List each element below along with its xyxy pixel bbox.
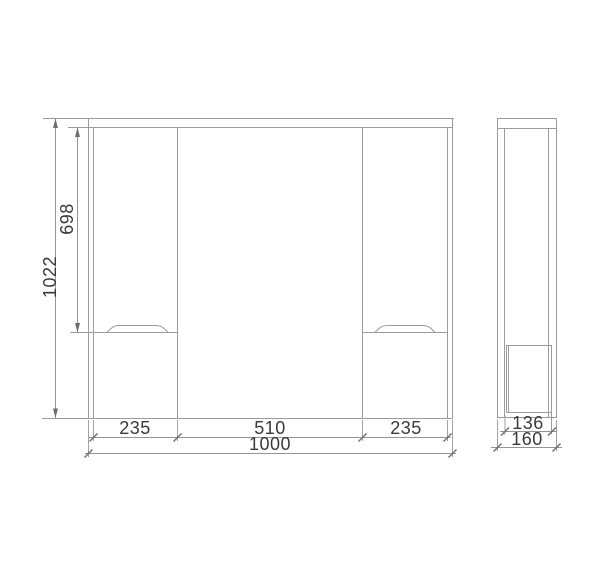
right-door-width-label: 235 xyxy=(390,418,422,438)
left-door-width-label: 235 xyxy=(119,418,151,438)
upper-height-arrow-bottom xyxy=(75,323,80,333)
total-height-arrow-bottom xyxy=(53,409,58,419)
right-door-handle xyxy=(375,326,435,333)
drawing-canvas: 1022 698 235 510 235 xyxy=(0,0,600,579)
upper-height-label: 698 xyxy=(57,203,77,235)
dimension-front-widths: 235 510 235 1000 xyxy=(85,418,457,458)
front-view xyxy=(42,119,454,419)
total-height-label: 1022 xyxy=(40,256,60,298)
cabinet-dimension-drawing: 1022 698 235 510 235 xyxy=(0,0,600,579)
left-door-handle xyxy=(107,326,168,333)
dimension-total-height: 1022 xyxy=(40,119,60,419)
upper-height-arrow-top xyxy=(75,128,80,138)
total-height-arrow-top xyxy=(53,119,58,129)
total-width-label: 1000 xyxy=(249,434,291,454)
total-depth-label: 160 xyxy=(511,429,543,449)
side-view xyxy=(497,119,557,435)
dimension-upper-section-height: 698 xyxy=(57,128,80,333)
